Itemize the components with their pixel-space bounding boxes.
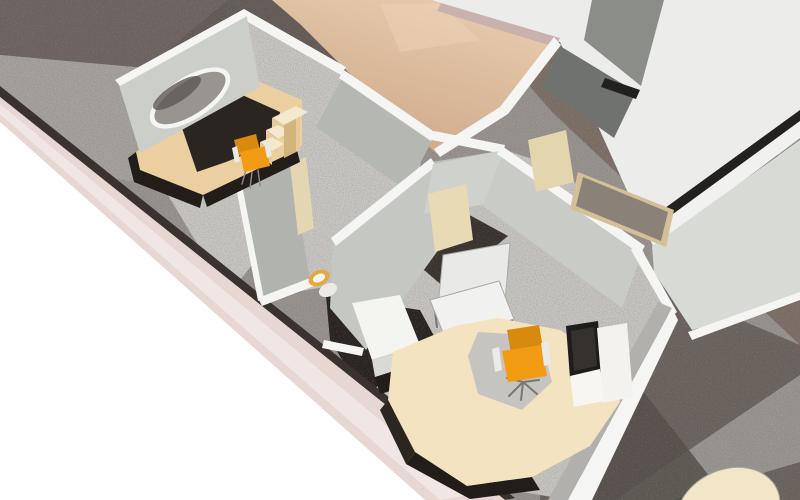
- shelf-side-panel: [284, 119, 296, 158]
- office-3d-render: [0, 0, 800, 500]
- office-chair-seat: [502, 345, 547, 382]
- adjacent-room-door: [528, 130, 574, 192]
- office-back-door: [428, 184, 473, 252]
- floorplan-render-canvas: [0, 0, 800, 500]
- monitor-screen: [571, 327, 597, 371]
